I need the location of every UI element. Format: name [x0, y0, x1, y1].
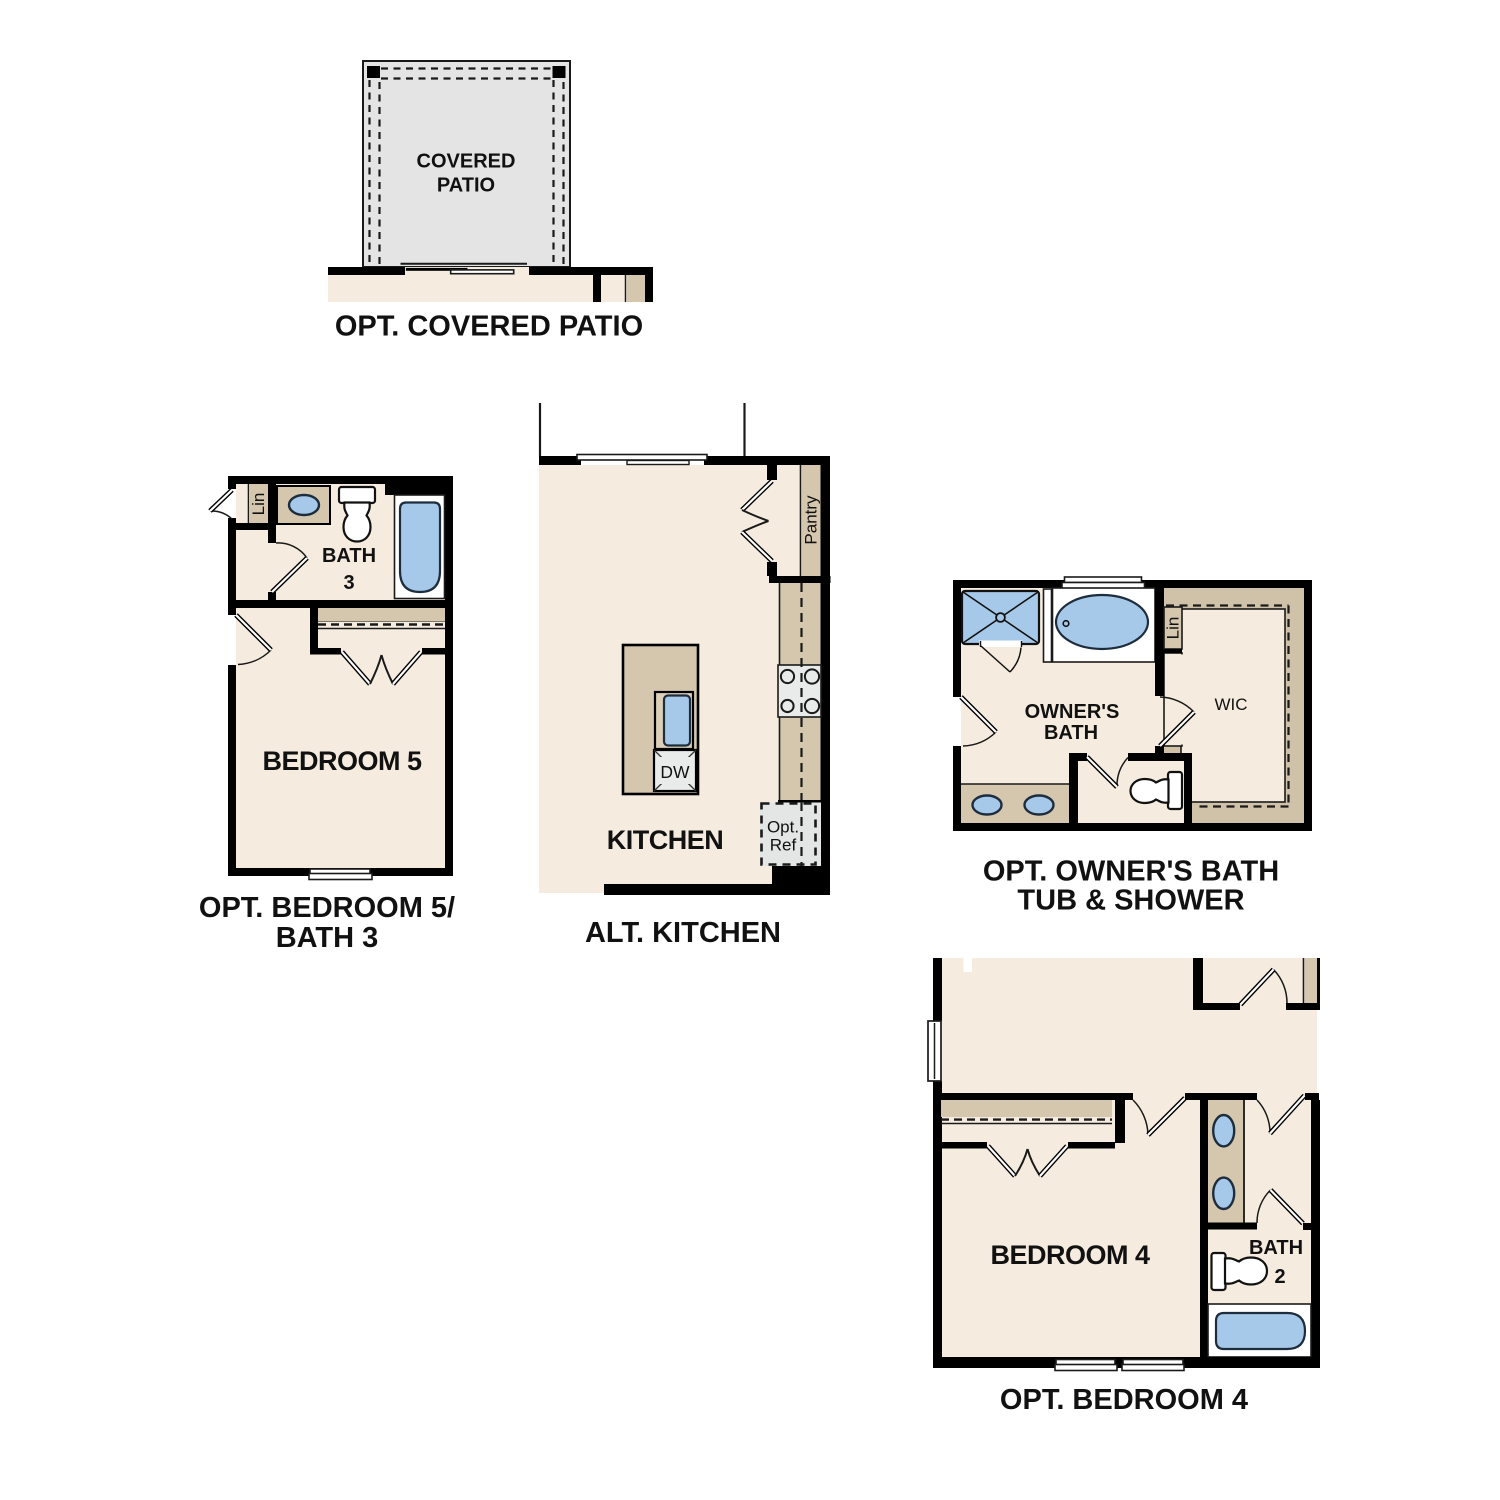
svg-text:Pantry: Pantry — [802, 495, 821, 545]
svg-text:PATIO: PATIO — [437, 175, 495, 197]
svg-text:ALT. KITCHEN: ALT. KITCHEN — [585, 917, 781, 949]
svg-text:Lin: Lin — [1164, 617, 1183, 640]
svg-text:COVERED: COVERED — [417, 151, 516, 173]
svg-text:OWNER'S: OWNER'S — [1025, 701, 1120, 723]
svg-text:BATH: BATH — [322, 545, 376, 567]
svg-text:BATH: BATH — [1044, 722, 1098, 744]
svg-text:2: 2 — [1274, 1266, 1285, 1288]
svg-text:DW: DW — [660, 762, 690, 782]
svg-text:OPT. BEDROOM 5/: OPT. BEDROOM 5/ — [199, 892, 455, 924]
svg-text:TUB & SHOWER: TUB & SHOWER — [1017, 885, 1244, 917]
svg-text:WIC: WIC — [1214, 695, 1247, 714]
svg-text:BATH 3: BATH 3 — [276, 922, 379, 954]
svg-text:OPT. COVERED PATIO: OPT. COVERED PATIO — [335, 311, 643, 343]
svg-text:Lin: Lin — [249, 493, 268, 516]
svg-text:Opt.: Opt. — [767, 818, 799, 837]
svg-text:BATH: BATH — [1249, 1237, 1303, 1259]
svg-text:BEDROOM 5: BEDROOM 5 — [262, 746, 422, 776]
svg-text:OPT. OWNER'S BATH: OPT. OWNER'S BATH — [983, 856, 1279, 888]
svg-text:KITCHEN: KITCHEN — [607, 825, 724, 855]
svg-text:BEDROOM 4: BEDROOM 4 — [990, 1240, 1150, 1270]
svg-text:3: 3 — [343, 572, 354, 594]
svg-text:Ref: Ref — [770, 836, 797, 855]
svg-text:OPT. BEDROOM 4: OPT. BEDROOM 4 — [1000, 1384, 1248, 1416]
